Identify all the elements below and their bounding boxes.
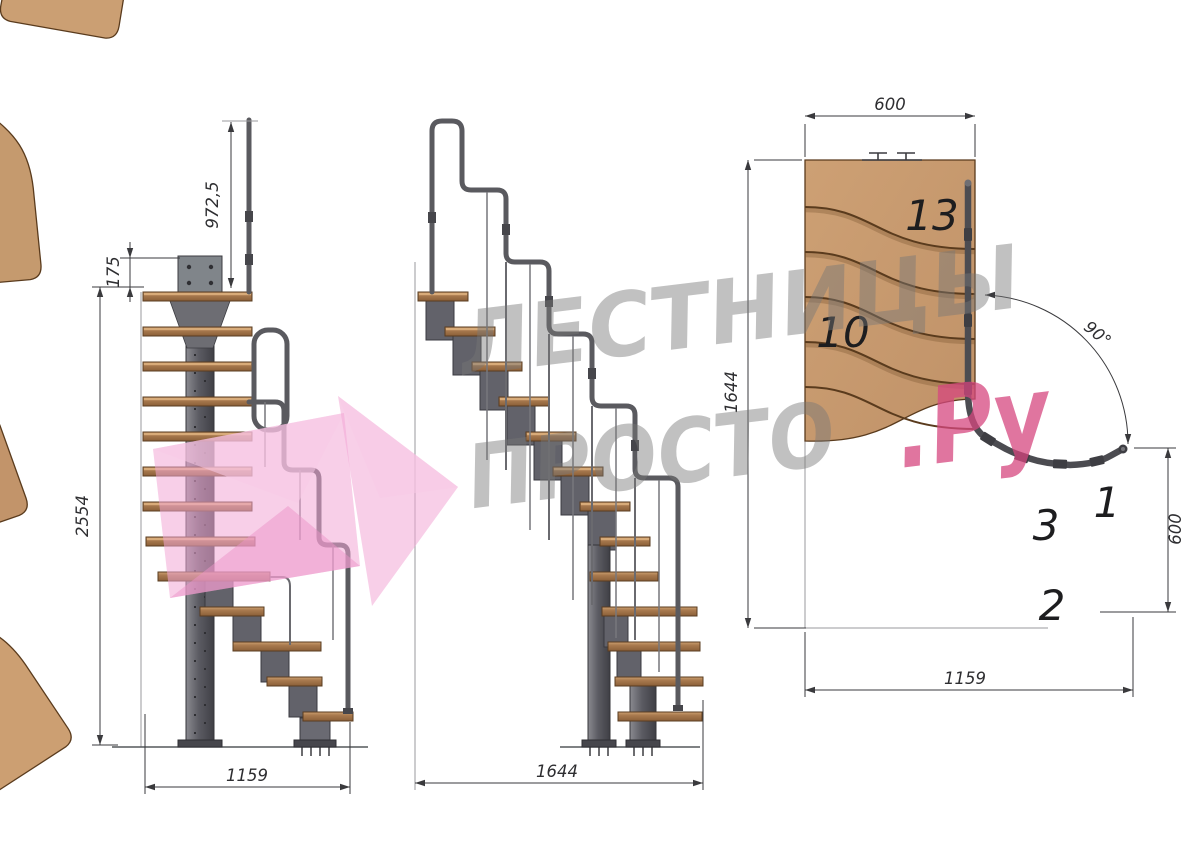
mount-bracket-marks bbox=[862, 153, 922, 160]
dim-label-1159-side: 1159 bbox=[226, 766, 268, 785]
rail-joint bbox=[245, 254, 253, 265]
tread-2 bbox=[0, 348, 31, 551]
anchor-bolts bbox=[302, 747, 329, 756]
label-tread-2: 2 bbox=[1039, 581, 1066, 630]
tread-3 bbox=[0, 106, 42, 289]
label-tread-3: 3 bbox=[1033, 501, 1060, 550]
dim-label-1644-front: 1644 bbox=[536, 762, 578, 781]
dim-label-90deg: 90° bbox=[1080, 317, 1115, 350]
tread-1 bbox=[0, 595, 76, 805]
dim-label-175: 175 bbox=[104, 256, 123, 288]
staircase-drawing: 972,5 175 2554 1159 bbox=[0, 0, 1200, 849]
anchor-bolts bbox=[590, 747, 652, 756]
rail-joint bbox=[245, 211, 253, 222]
rail-segment bbox=[270, 577, 290, 645]
drawing-canvas: 972,5 175 2554 1159 bbox=[0, 0, 1200, 849]
dim-label-600-top: 600 bbox=[874, 95, 906, 114]
dim-label-600-right: 600 bbox=[1166, 513, 1185, 545]
dim-label-1159-plan: 1159 bbox=[944, 669, 986, 688]
dim-label-972-5: 972,5 bbox=[203, 181, 222, 228]
mount-plate bbox=[178, 256, 222, 292]
dim-label-2554: 2554 bbox=[73, 495, 92, 537]
label-tread-1: 1 bbox=[1094, 478, 1121, 527]
watermark-text-ru: .Ру bbox=[895, 351, 1051, 494]
funnel-bracket bbox=[170, 301, 230, 348]
